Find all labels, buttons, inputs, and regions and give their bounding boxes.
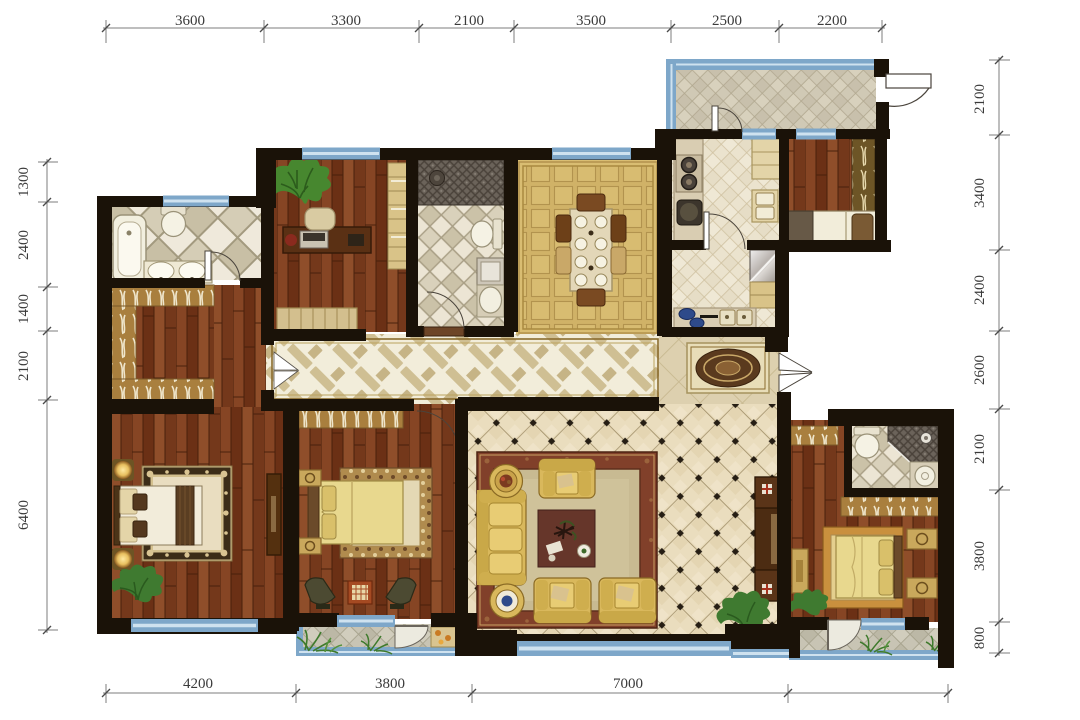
svg-text:7000: 7000 (613, 676, 643, 692)
svg-text:3500: 3500 (576, 13, 606, 29)
svg-text:3400: 3400 (972, 178, 988, 208)
svg-text:1300: 1300 (16, 167, 32, 197)
svg-text:2200: 2200 (817, 13, 847, 29)
svg-text:3800: 3800 (972, 541, 988, 571)
svg-text:3600: 3600 (175, 13, 205, 29)
svg-text:3800: 3800 (375, 676, 405, 692)
svg-text:2100: 2100 (16, 351, 32, 381)
svg-text:4200: 4200 (183, 676, 213, 692)
svg-text:800: 800 (972, 627, 988, 650)
svg-text:2100: 2100 (454, 13, 484, 29)
svg-text:6400: 6400 (16, 500, 32, 530)
svg-text:1400: 1400 (16, 294, 32, 324)
svg-text:2600: 2600 (972, 355, 988, 385)
svg-text:3300: 3300 (331, 13, 361, 29)
svg-text:2500: 2500 (712, 13, 742, 29)
svg-text:2400: 2400 (16, 230, 32, 260)
svg-text:2400: 2400 (972, 275, 988, 305)
svg-text:2100: 2100 (972, 434, 988, 464)
svg-text:2100: 2100 (972, 84, 988, 114)
